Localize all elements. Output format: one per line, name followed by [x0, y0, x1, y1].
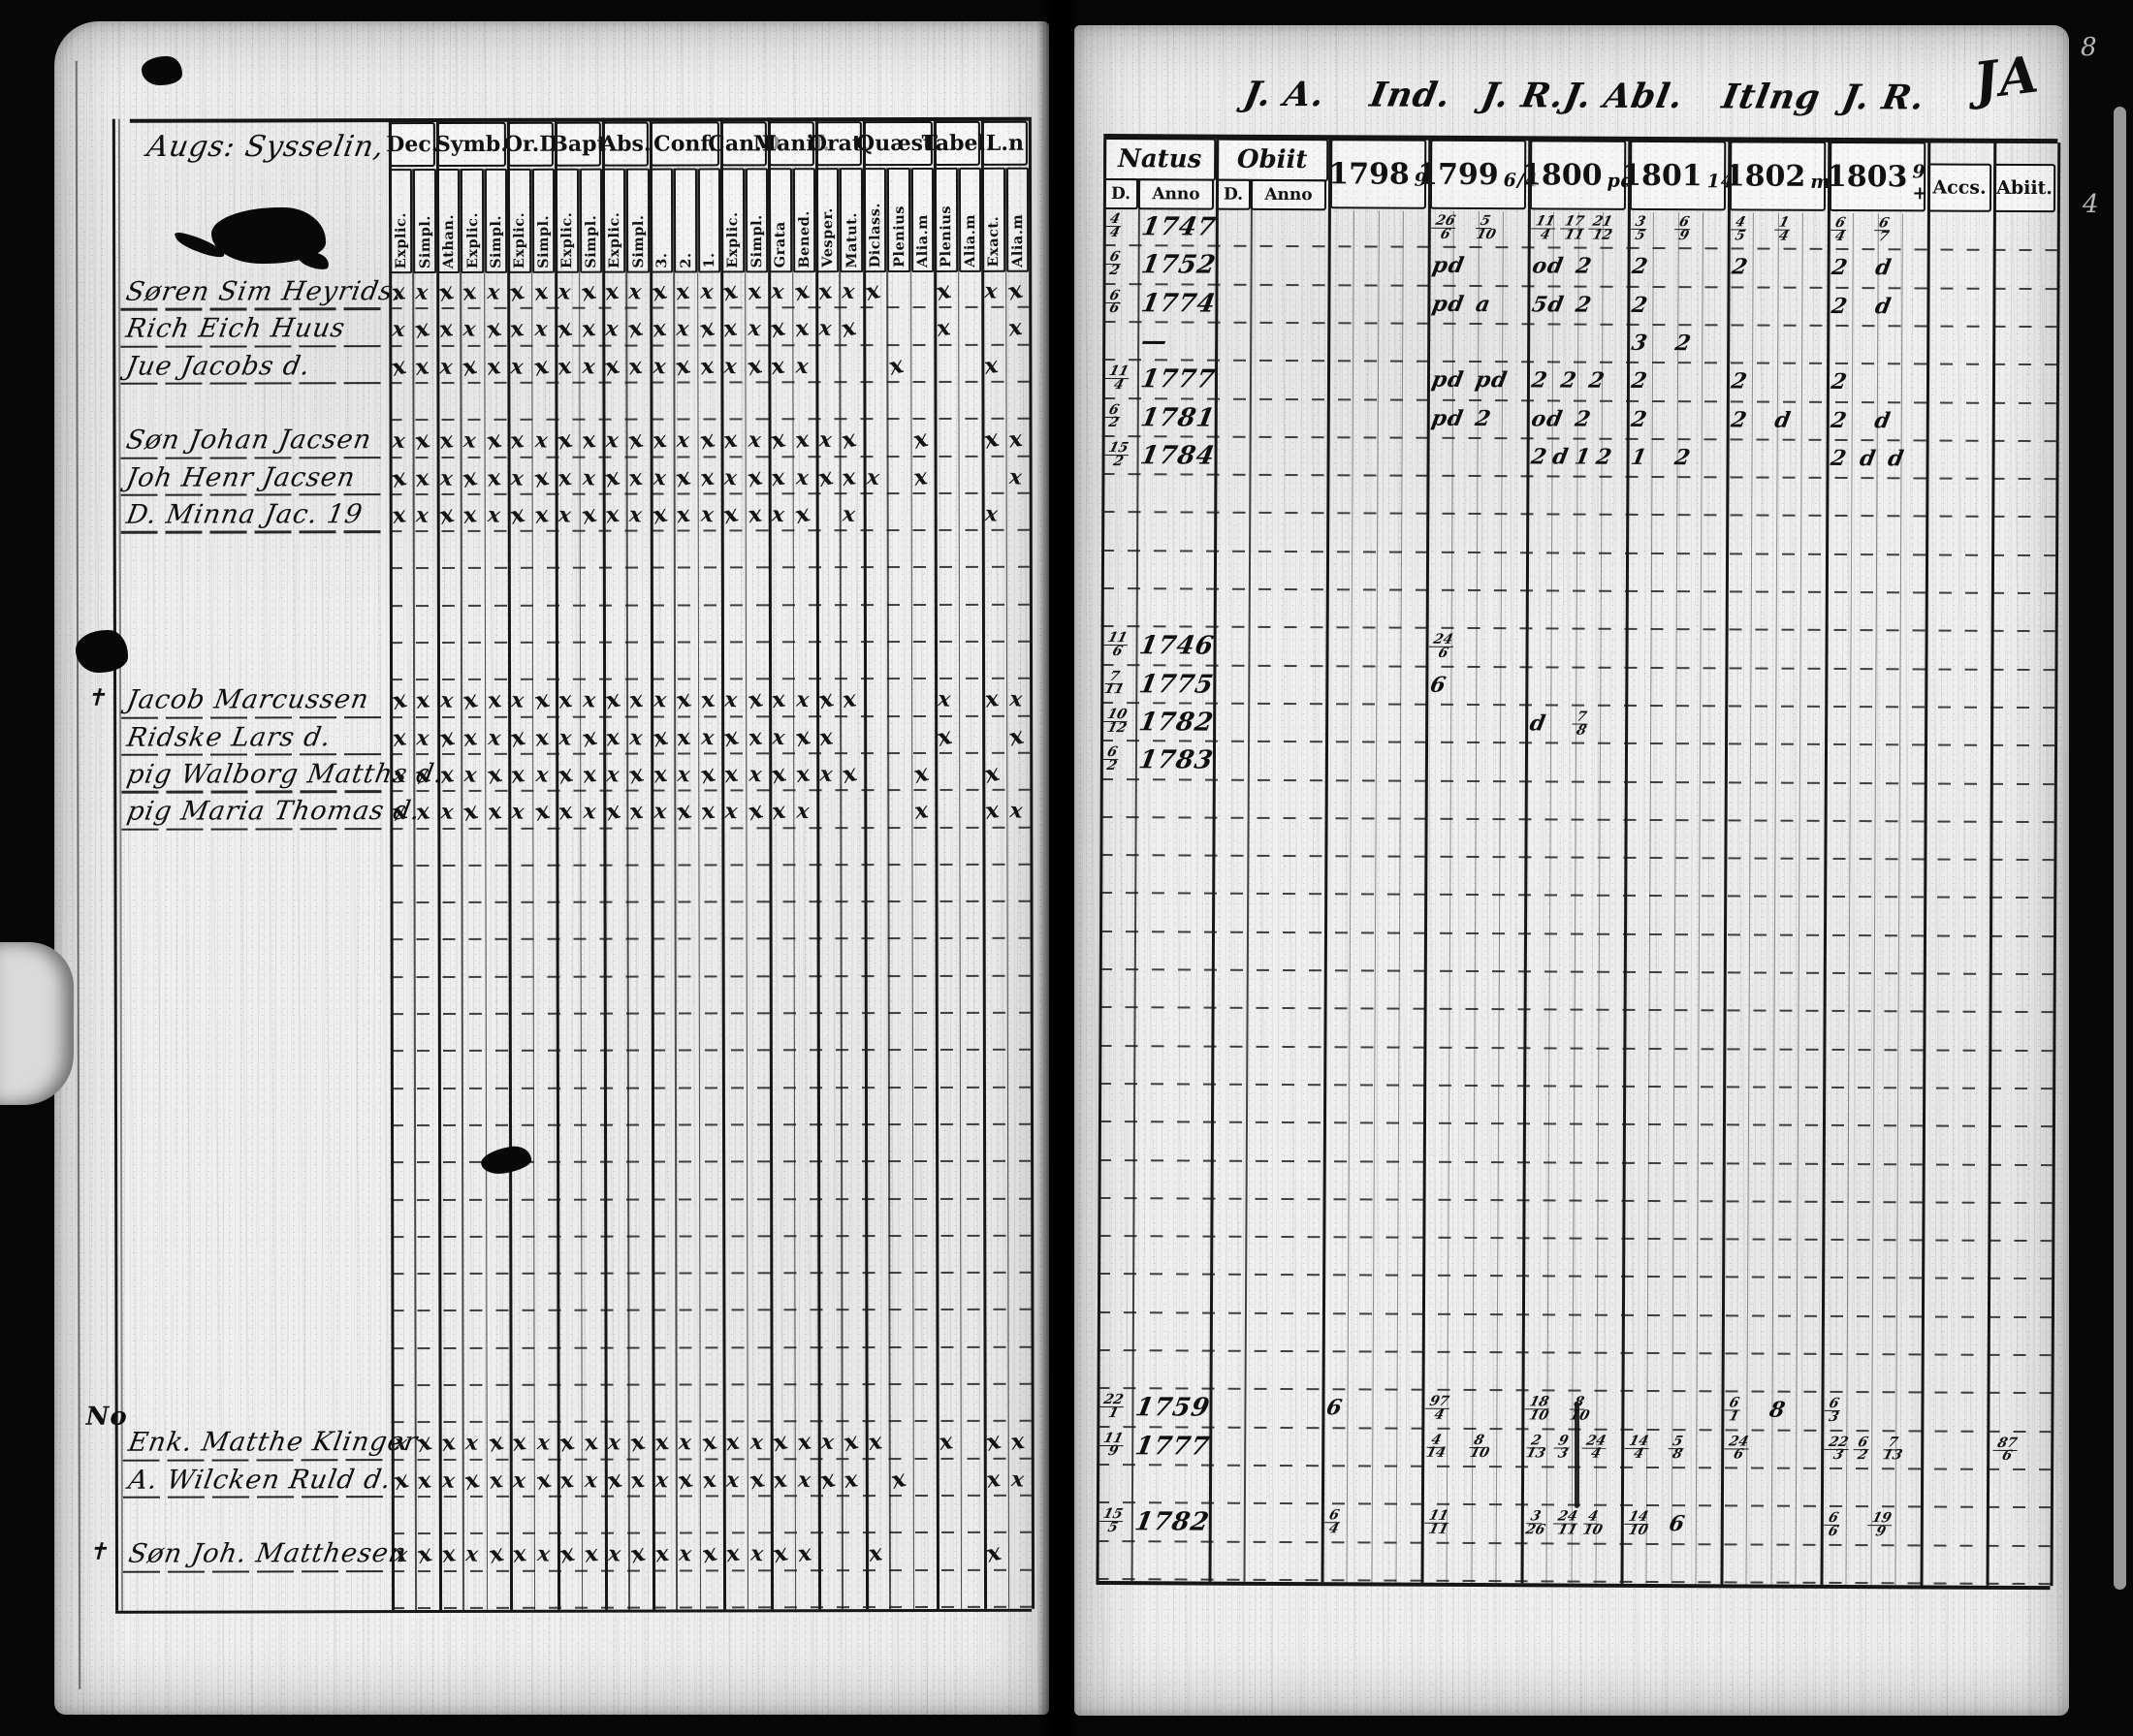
year-entry: 246 — [1430, 634, 1455, 660]
row-rule — [1100, 816, 2054, 823]
communion-mark: x — [653, 687, 668, 712]
sub-column-line — [1244, 179, 1253, 1582]
communion-mark: x — [534, 427, 549, 453]
ink-blot — [142, 56, 182, 85]
communion-mark: x — [654, 1468, 669, 1493]
communion-mark: x — [843, 1466, 859, 1494]
name-column-line — [118, 119, 123, 1611]
communion-mark: x — [772, 724, 786, 749]
communion-mark: x — [438, 761, 455, 789]
communion-mark: x — [415, 279, 430, 304]
communion-mark: x — [414, 464, 430, 492]
communion-mark: x — [1010, 1467, 1025, 1492]
communion-mark: x — [724, 799, 739, 824]
communion-mark: x — [697, 426, 717, 456]
year-entry: 1 — [1575, 444, 1590, 469]
sub-column-label: Explic. — [511, 209, 527, 271]
year-entry: 244 — [1583, 1435, 1608, 1461]
row-rule — [390, 603, 1030, 606]
row-rule — [391, 1272, 1031, 1275]
row-rule — [392, 1383, 1032, 1386]
communion-mark: x — [1006, 426, 1023, 454]
year-entry: 1810 — [1526, 1397, 1551, 1423]
sub-column-header: Alia.m — [959, 168, 982, 272]
sub-column-header: Matut. — [840, 168, 863, 272]
sub-column-header: Vesper. — [816, 168, 840, 272]
sub-column-header: Alia.m — [1005, 168, 1029, 272]
row-rule — [389, 343, 1029, 346]
communion-mark: x — [983, 352, 1000, 380]
communion-mark: x — [534, 762, 549, 787]
year-entry: 2 — [1832, 255, 1848, 280]
communion-mark: x — [673, 351, 693, 381]
communion-mark: x — [463, 762, 478, 787]
sub-column-label: Plenius — [938, 203, 954, 270]
communion-mark: x — [1005, 721, 1026, 751]
row-name: Rich Eich Huus — [126, 314, 345, 344]
communion-mark: x — [747, 1465, 767, 1495]
communion-mark: x — [677, 762, 691, 787]
communion-mark: x — [651, 315, 667, 343]
communion-mark: x — [771, 798, 787, 826]
communion-mark: x — [462, 1466, 483, 1496]
sub-column-label: 1. — [701, 249, 717, 270]
communion-mark: x — [820, 1430, 835, 1455]
right-page: J. A.Ind.J. R.J. Abl.ItlngJ. R.NatusObii… — [1074, 25, 2069, 1716]
year-header: 17996/4 — [1430, 140, 1526, 210]
row-rule — [391, 1086, 1031, 1089]
communion-mark: x — [818, 427, 833, 453]
communion-mark: x — [747, 500, 763, 528]
communion-mark: x — [795, 799, 810, 824]
year-entry: 64 — [1326, 1509, 1342, 1535]
margin-no-label: No — [86, 1403, 128, 1432]
communion-mark: x — [578, 277, 598, 307]
communion-mark: x — [744, 351, 764, 381]
year-entry: 199 — [1868, 1512, 1894, 1538]
natus-year: 1747 — [1142, 212, 1217, 241]
name-underline — [121, 493, 388, 496]
year-entry: 1410 — [1626, 1511, 1651, 1537]
communion-mark: x — [486, 686, 502, 714]
communion-mark: x — [676, 316, 690, 341]
year-entry: d — [1553, 444, 1570, 469]
communion-mark: x — [794, 760, 811, 788]
year-entry: 2 — [1831, 446, 1847, 471]
sub-column-header: 2. — [674, 168, 697, 272]
communion-mark: x — [770, 352, 786, 380]
row-rule — [1097, 1539, 2051, 1546]
year-entry: pd — [1432, 405, 1464, 430]
communion-mark: x — [674, 685, 694, 715]
natus-year: 1759 — [1135, 1393, 1210, 1422]
communion-mark: x — [674, 797, 694, 827]
communion-mark: x — [936, 314, 952, 342]
row-rule — [391, 1197, 1031, 1200]
row-rule — [1100, 664, 2054, 671]
year-entry: 810 — [1470, 1435, 1489, 1461]
page-margin-line — [76, 61, 80, 1689]
abiit-entry: 876 — [1994, 1436, 2020, 1463]
year-entry: d — [1530, 710, 1546, 736]
column-header: Dec. — [390, 122, 435, 167]
communion-mark: x — [1008, 1428, 1025, 1456]
communion-mark: x — [795, 1429, 812, 1457]
sub-column-line — [1004, 168, 1009, 1609]
communion-mark: x — [557, 463, 573, 491]
column-line — [1920, 142, 1930, 1585]
communion-mark: x — [416, 502, 430, 527]
sub-column-label: Explic. — [464, 209, 481, 271]
communion-mark: x — [793, 426, 810, 455]
natus-year: 1781 — [1141, 403, 1216, 432]
communion-mark: x — [536, 1431, 551, 1456]
row-rule — [1103, 283, 2057, 290]
year-entry: d — [1860, 446, 1876, 471]
row-name: Søn Joh. Matthesen — [129, 1538, 406, 1569]
communion-mark: x — [676, 723, 692, 751]
communion-mark: x — [510, 354, 525, 379]
sub-column-line — [839, 168, 844, 1609]
communion-mark: x — [534, 317, 549, 342]
sub-column-header: Explic. — [556, 169, 579, 273]
sub-column-label: Diclass. — [867, 200, 883, 270]
row-rule — [1101, 511, 2055, 518]
communion-mark: x — [840, 759, 860, 789]
row-name: Ridske Lars d. — [127, 722, 331, 752]
communion-mark: x — [629, 1466, 646, 1494]
sub-column-header: Plenius — [887, 168, 910, 272]
communion-mark: x — [509, 426, 525, 455]
sub-column-header: Alia.m — [911, 168, 935, 272]
communion-mark: x — [390, 278, 406, 306]
year-entry: 8 — [1769, 1398, 1785, 1423]
communion-mark: x — [747, 723, 763, 751]
name-underline — [121, 530, 388, 533]
communion-mark: x — [697, 759, 717, 789]
abiit-header: Abiit. — [1993, 164, 2055, 212]
communion-mark: x — [749, 1430, 764, 1455]
ink-blot — [76, 630, 128, 673]
sub-column-label: Explic. — [558, 208, 575, 270]
communion-mark: x — [484, 426, 504, 456]
communion-mark: x — [700, 279, 715, 304]
year-entry: 510 — [1476, 215, 1495, 241]
communion-mark: x — [557, 353, 573, 381]
year-entry: 2 — [1576, 292, 1591, 317]
sub-column-header: Explic. — [603, 169, 626, 273]
communion-mark: x — [652, 426, 668, 455]
row-rule — [390, 752, 1030, 755]
row-name: Jue Jacobs d. — [126, 351, 310, 381]
communion-mark: x — [984, 797, 1001, 825]
row-rule — [1101, 473, 2055, 480]
communion-mark: x — [745, 797, 765, 827]
communion-mark: x — [487, 502, 501, 527]
communion-mark: x — [462, 317, 477, 342]
column-header: L.n — [982, 121, 1028, 166]
communion-mark: x — [509, 315, 525, 343]
communion-mark: x — [557, 502, 572, 527]
left-page: Dec.Explic.Simpl.Symb.Athan.Explic.Simpl… — [54, 21, 1049, 1715]
row-rule — [1102, 435, 2056, 442]
year-entry: 2 — [1733, 255, 1748, 280]
natus-day: 62 — [1104, 746, 1120, 773]
sub-column-header: Simpl. — [579, 169, 602, 273]
communion-mark: x — [513, 1468, 527, 1493]
communion-mark: x — [531, 462, 552, 492]
communion-mark: x — [461, 797, 481, 827]
row-rule — [1101, 587, 2055, 594]
communion-mark: x — [557, 279, 572, 304]
year-entry: 266 — [1433, 215, 1458, 241]
sub-column-line — [958, 168, 963, 1609]
church-register-scan: Dec.Explic.Simpl.Symb.Athan.Explic.Simpl… — [0, 0, 2133, 1736]
year-entry: od — [1532, 406, 1563, 431]
communion-mark: x — [460, 352, 480, 382]
year-entry: 62 — [1855, 1436, 1870, 1463]
communion-mark: x — [415, 1539, 435, 1569]
communion-mark: x — [746, 278, 762, 306]
sub-column-header: Simpl. — [746, 168, 769, 272]
row-rule — [1099, 1006, 2053, 1013]
year-entry: 2 — [1576, 254, 1591, 279]
year-entry: 2 — [1632, 368, 1647, 394]
year-entry: 2 — [1633, 254, 1648, 279]
year-header-note: 9 + — [1912, 161, 1928, 204]
year-entry: 1111 — [1426, 1510, 1451, 1536]
year-sub-line — [1696, 212, 1703, 1584]
natus-day: 62 — [1106, 404, 1122, 430]
communion-mark: x — [910, 759, 931, 789]
row-rule — [391, 1345, 1031, 1348]
communion-mark: x — [722, 315, 739, 343]
name-underline — [121, 753, 388, 756]
name-underline — [121, 828, 388, 831]
year-entry: 213 — [1526, 1435, 1545, 1461]
communion-mark: x — [483, 314, 503, 344]
year-entry: a — [1476, 292, 1490, 317]
row-rule — [391, 1235, 1031, 1238]
communion-mark: x — [1006, 314, 1023, 342]
year-entry: od — [1533, 254, 1564, 279]
communion-mark: x — [770, 686, 786, 714]
natus-day: 116 — [1104, 632, 1130, 658]
year-entry: 63 — [1826, 1398, 1841, 1424]
communion-mark: x — [748, 762, 762, 787]
communion-mark: x — [628, 279, 643, 304]
communion-mark: x — [511, 1429, 527, 1457]
communion-mark: x — [440, 1429, 457, 1457]
communion-mark: x — [557, 798, 574, 826]
communion-mark: x — [486, 1539, 506, 1569]
year-entry: 2 — [1532, 368, 1547, 394]
year-entry: 61 — [1726, 1398, 1741, 1424]
communion-mark: x — [700, 502, 715, 527]
communion-mark: x — [771, 279, 785, 304]
communion-mark: x — [584, 1468, 598, 1493]
year-entry: 2 — [1632, 292, 1647, 317]
row-name: Joh Henr Jacsen — [127, 462, 356, 492]
year-entry: 78 — [1574, 710, 1589, 737]
row-rule — [1098, 1273, 2052, 1279]
communion-mark: x — [1008, 464, 1023, 489]
year-entry: d — [1875, 255, 1892, 280]
row-rule — [391, 1309, 1031, 1311]
name-underline — [123, 1496, 390, 1499]
year-entry: 3 — [1632, 331, 1647, 356]
communion-mark: x — [748, 427, 762, 453]
communion-mark: x — [582, 465, 596, 490]
name-column-line — [112, 119, 118, 1611]
column-header: Orat. — [816, 121, 862, 166]
communion-mark: x — [771, 501, 785, 526]
year-entry: 2 — [1675, 331, 1691, 356]
sub-column-header: Grata — [769, 168, 792, 272]
row-rule — [392, 1568, 1032, 1571]
row-rule — [1102, 359, 2056, 365]
row-rule — [1099, 892, 2053, 899]
communion-mark: x — [652, 761, 668, 789]
communion-mark: x — [628, 798, 645, 826]
year-entry: 2 — [1532, 444, 1547, 469]
natus-day: 114 — [1106, 365, 1131, 392]
row-rule — [390, 529, 1030, 532]
natus-year: 1752 — [1142, 251, 1217, 280]
sub-column-label: Matut. — [844, 209, 860, 270]
communion-mark: x — [653, 464, 667, 489]
communion-mark: x — [416, 725, 430, 750]
row-name: D. Minna Jac. 19 — [127, 499, 363, 530]
script-annotation: Itlng — [1722, 77, 1820, 117]
year-entry: d — [1874, 408, 1891, 433]
communion-mark: x — [607, 1541, 621, 1566]
row-rule — [392, 1531, 1032, 1534]
communion-mark: x — [698, 352, 715, 380]
natus-year: 1782 — [1139, 708, 1214, 737]
communion-mark: x — [679, 1430, 693, 1455]
communion-mark: x — [391, 724, 407, 752]
column-header: Or.D — [508, 122, 554, 167]
sub-column-label: Simpl. — [488, 212, 504, 271]
communion-mark: x — [582, 799, 596, 824]
sub-column-label: Simpl. — [630, 212, 647, 271]
communion-mark: x — [395, 1542, 409, 1567]
communion-mark: x — [1008, 798, 1023, 823]
script-annotation: J. Abl. — [1564, 76, 1683, 116]
communion-mark: x — [626, 759, 647, 789]
column-line — [1720, 141, 1731, 1584]
communion-mark: x — [701, 724, 716, 749]
natus-year: 1775 — [1139, 670, 1214, 699]
column-line — [1620, 141, 1631, 1584]
year-entry: 246 — [1726, 1436, 1751, 1462]
natus-day: 119 — [1100, 1433, 1126, 1459]
communion-mark: x — [465, 1542, 480, 1567]
book-clasp — [0, 942, 74, 1105]
sub-column-line — [745, 168, 749, 1609]
communion-mark: x — [465, 1431, 480, 1456]
row-rule — [392, 1495, 1032, 1498]
year-entry: 64 — [1832, 217, 1848, 243]
communion-mark: x — [486, 464, 502, 492]
communion-mark: x — [701, 1466, 717, 1494]
sub-column-line — [531, 169, 536, 1610]
natus-day: 221 — [1100, 1394, 1126, 1420]
row-rule — [1100, 740, 2054, 746]
row-rule — [1098, 1121, 2053, 1127]
name-underline — [121, 790, 388, 793]
communion-mark: x — [699, 798, 716, 826]
sub-column-label: 2. — [678, 249, 694, 270]
communion-mark: x — [440, 800, 455, 825]
natus-year: 1784 — [1141, 441, 1216, 470]
communion-mark: x — [841, 463, 857, 491]
communion-mark: x — [1004, 276, 1025, 306]
communion-mark: x — [462, 278, 478, 306]
sub-column-label: Simpl. — [583, 212, 599, 271]
year-entry: d — [1774, 407, 1791, 432]
communion-mark: x — [770, 463, 786, 491]
communion-mark: x — [607, 1430, 621, 1455]
sub-column-header: Exact. — [982, 168, 1005, 272]
corner-mark-4: 4 — [2083, 190, 2099, 219]
communion-mark: x — [628, 1539, 649, 1569]
natus-year: 1783 — [1139, 745, 1214, 774]
margin-cross-mark: ✝ — [86, 684, 107, 711]
year-entry: 5d — [1532, 292, 1564, 317]
communion-mark: x — [484, 760, 504, 790]
row-rule — [390, 864, 1030, 867]
year-entry: 45 — [1733, 216, 1748, 242]
year-entry: 2 — [1831, 369, 1847, 395]
date-sub-header: D. — [1103, 178, 1138, 209]
year-entry: 713 — [1883, 1436, 1902, 1463]
sub-column-line — [886, 168, 891, 1609]
communion-mark: x — [867, 1539, 883, 1567]
communion-mark: x — [792, 722, 812, 752]
communion-mark: x — [679, 1541, 693, 1566]
row-rule — [390, 678, 1030, 680]
sub-column-label: Bened. — [796, 207, 812, 270]
communion-mark: x — [699, 686, 716, 714]
communion-mark: x — [558, 1467, 575, 1495]
communion-mark: x — [392, 317, 406, 342]
year-entry: 2 — [1732, 407, 1747, 432]
sub-column-label: Alia.m — [1009, 211, 1026, 270]
year-entry: 6 — [1669, 1511, 1684, 1536]
communion-mark: x — [675, 500, 691, 528]
ink-smear — [1575, 1402, 1579, 1508]
row-rule — [390, 789, 1030, 792]
communion-mark: x — [511, 1540, 527, 1568]
column-header: Tabel. — [935, 121, 980, 166]
communion-mark: x — [439, 465, 454, 490]
communion-mark: x — [531, 797, 552, 827]
year-entry: 14 — [1775, 217, 1791, 243]
row-rule — [1098, 1235, 2052, 1242]
communion-mark: x — [488, 725, 502, 750]
natus-year: — — [1141, 327, 1167, 356]
script-annotation: J. R. — [1842, 78, 1925, 117]
communion-mark: x — [604, 723, 621, 751]
row-rule — [1098, 1349, 2052, 1356]
row-rule — [1097, 1501, 2051, 1508]
year-entry: d — [1889, 446, 1905, 471]
name-underline — [123, 1570, 390, 1573]
communion-mark: x — [772, 1466, 788, 1494]
row-name: Enk. Matthe Klinger — [129, 1427, 418, 1458]
